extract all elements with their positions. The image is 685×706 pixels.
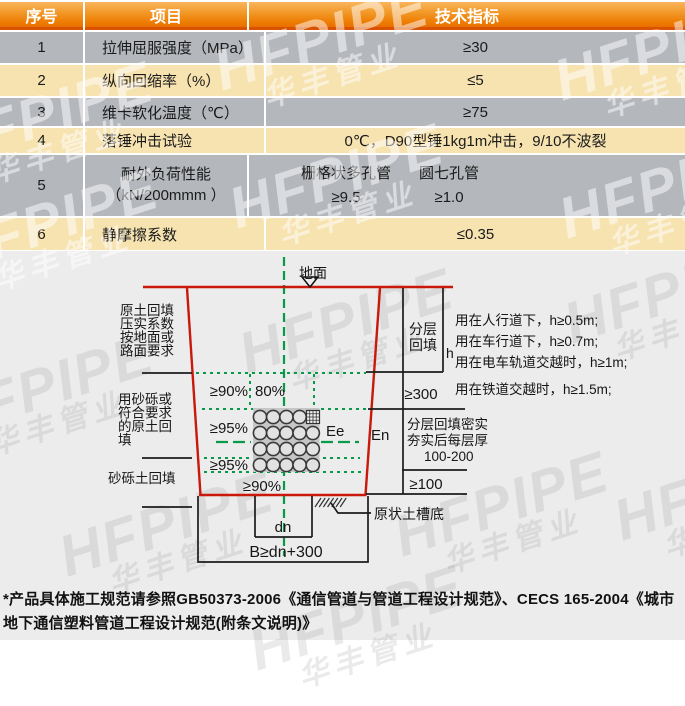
footnote: *产品具体施工规范请参照GB50373-2006《通信管道与管道工程设计规范》、…	[0, 588, 685, 636]
table-row: 5 耐外负荷性能 （kN/200mmm ） 栅格状多孔管 ≥9.5 圆七孔管 ≥…	[0, 155, 685, 216]
table-header-row: 序号 项目 技术指标	[0, 2, 685, 30]
cell-seq: 3	[0, 98, 83, 126]
subcolumn-value: ≥9.5	[331, 190, 360, 205]
cell-item: 落锤冲击试验	[85, 128, 264, 153]
cell-seq: 5	[0, 155, 83, 216]
spec-table: 序号 项目 技术指标 1 拉伸屈服强度（MPa） ≥30 2 纵向回缩率（%） …	[0, 0, 685, 250]
subcolumn-header: 圆七孔管	[419, 166, 479, 181]
cell-item: 静摩擦系数	[85, 218, 264, 250]
table-row: 3 维卡软化温度（℃） ≥75	[0, 98, 685, 126]
cell-spec: 栅格状多孔管 ≥9.5 圆七孔管 ≥1.0	[249, 155, 685, 216]
cell-spec: ≤0.35	[266, 218, 685, 250]
table-row: 4 落锤冲击试验 0℃，D90型锤1kg1m冲击，9/10不波裂	[0, 128, 685, 153]
diagram-background	[0, 251, 685, 640]
header-spec: 技术指标	[249, 2, 685, 30]
table-row: 1 拉伸屈服强度（MPa） ≥30	[0, 32, 685, 63]
header-item: 项目	[85, 2, 247, 30]
cell-seq: 6	[0, 218, 83, 250]
cell-item: 拉伸屈服强度（MPa）	[85, 32, 264, 63]
item-line: （kN/200mmm ）	[106, 186, 225, 206]
subcolumn-header: 栅格状多孔管	[301, 166, 391, 181]
table-row: 6 静摩擦系数 ≤0.35	[0, 218, 685, 250]
header-seq: 序号	[0, 2, 83, 30]
item-line: 耐外负荷性能	[121, 165, 211, 185]
cell-seq: 4	[0, 128, 83, 153]
cell-seq: 1	[0, 32, 83, 63]
cell-spec: ≥75	[266, 98, 685, 126]
cell-item: 耐外负荷性能 （kN/200mmm ）	[85, 155, 247, 216]
table-row: 2 纵向回缩率（%） ≤5	[0, 65, 685, 96]
cell-spec: 0℃，D90型锤1kg1m冲击，9/10不波裂	[266, 128, 685, 153]
spec-subcolumn: 栅格状多孔管 ≥9.5	[301, 166, 391, 205]
cell-spec: ≥30	[266, 32, 685, 63]
cell-item: 维卡软化温度（℃）	[85, 98, 264, 126]
cell-item: 纵向回缩率（%）	[85, 65, 264, 96]
cell-seq: 2	[0, 65, 83, 96]
cell-spec: ≤5	[266, 65, 685, 96]
subcolumn-value: ≥1.0	[434, 190, 463, 205]
spec-subcolumn: 圆七孔管 ≥1.0	[419, 166, 479, 205]
